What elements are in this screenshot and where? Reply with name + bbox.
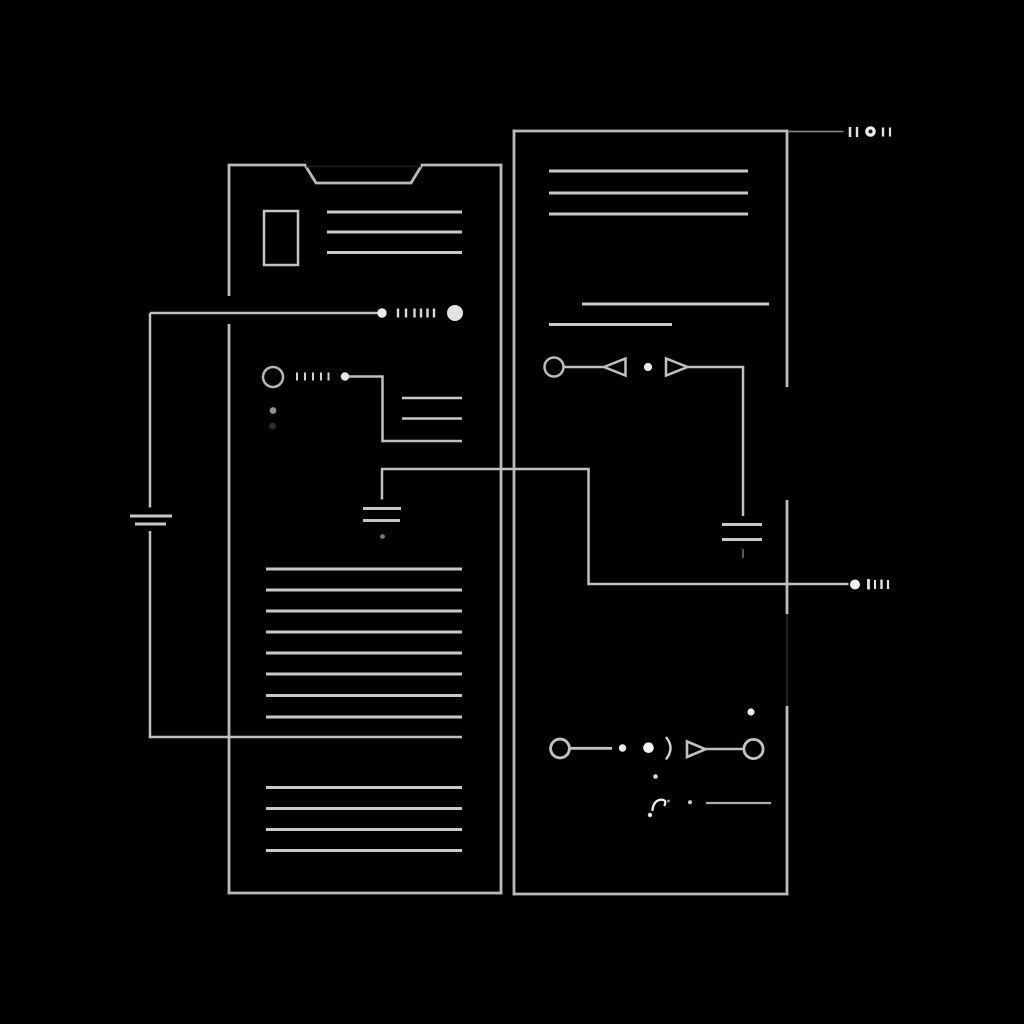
row2-paren-arc [667, 738, 671, 759]
bottom-dash-dot [688, 800, 692, 804]
circle-row-dot [341, 372, 349, 380]
wire-row1-node-dot [377, 308, 386, 317]
schematic-stage [0, 0, 1024, 1024]
circle-row-circle [263, 367, 283, 387]
schematic-canvas [0, 0, 1024, 1024]
left-panel-small-rect [264, 211, 298, 265]
wire-row1-terminal-circle [447, 305, 463, 321]
row2-circle-right [744, 739, 763, 758]
row2-dot-above [747, 708, 754, 715]
left-panel-notch-right-slant [411, 165, 422, 183]
row1-triangle-left [604, 359, 626, 376]
mid-ground-dot [380, 534, 385, 539]
small-dark-dot [269, 423, 276, 430]
row2-dot-below [653, 774, 658, 779]
bottom-scribble-speck [667, 800, 670, 803]
row2-circle-left [551, 739, 570, 758]
row1-dot [644, 363, 652, 371]
mid-wire-end-dot [850, 580, 860, 590]
bottom-scribble-dot [648, 813, 652, 817]
row2-triangle-right [687, 742, 706, 758]
row2-dot-large [643, 742, 654, 753]
bottom-scribble [653, 800, 666, 810]
top-terminator-ring-center [869, 130, 873, 134]
left-panel-notch-left-slant [305, 165, 316, 183]
row1-triangle-right [666, 359, 688, 376]
row2-dot-small [619, 744, 626, 751]
small-gray-dot [270, 407, 277, 414]
row1-circle [545, 358, 564, 377]
